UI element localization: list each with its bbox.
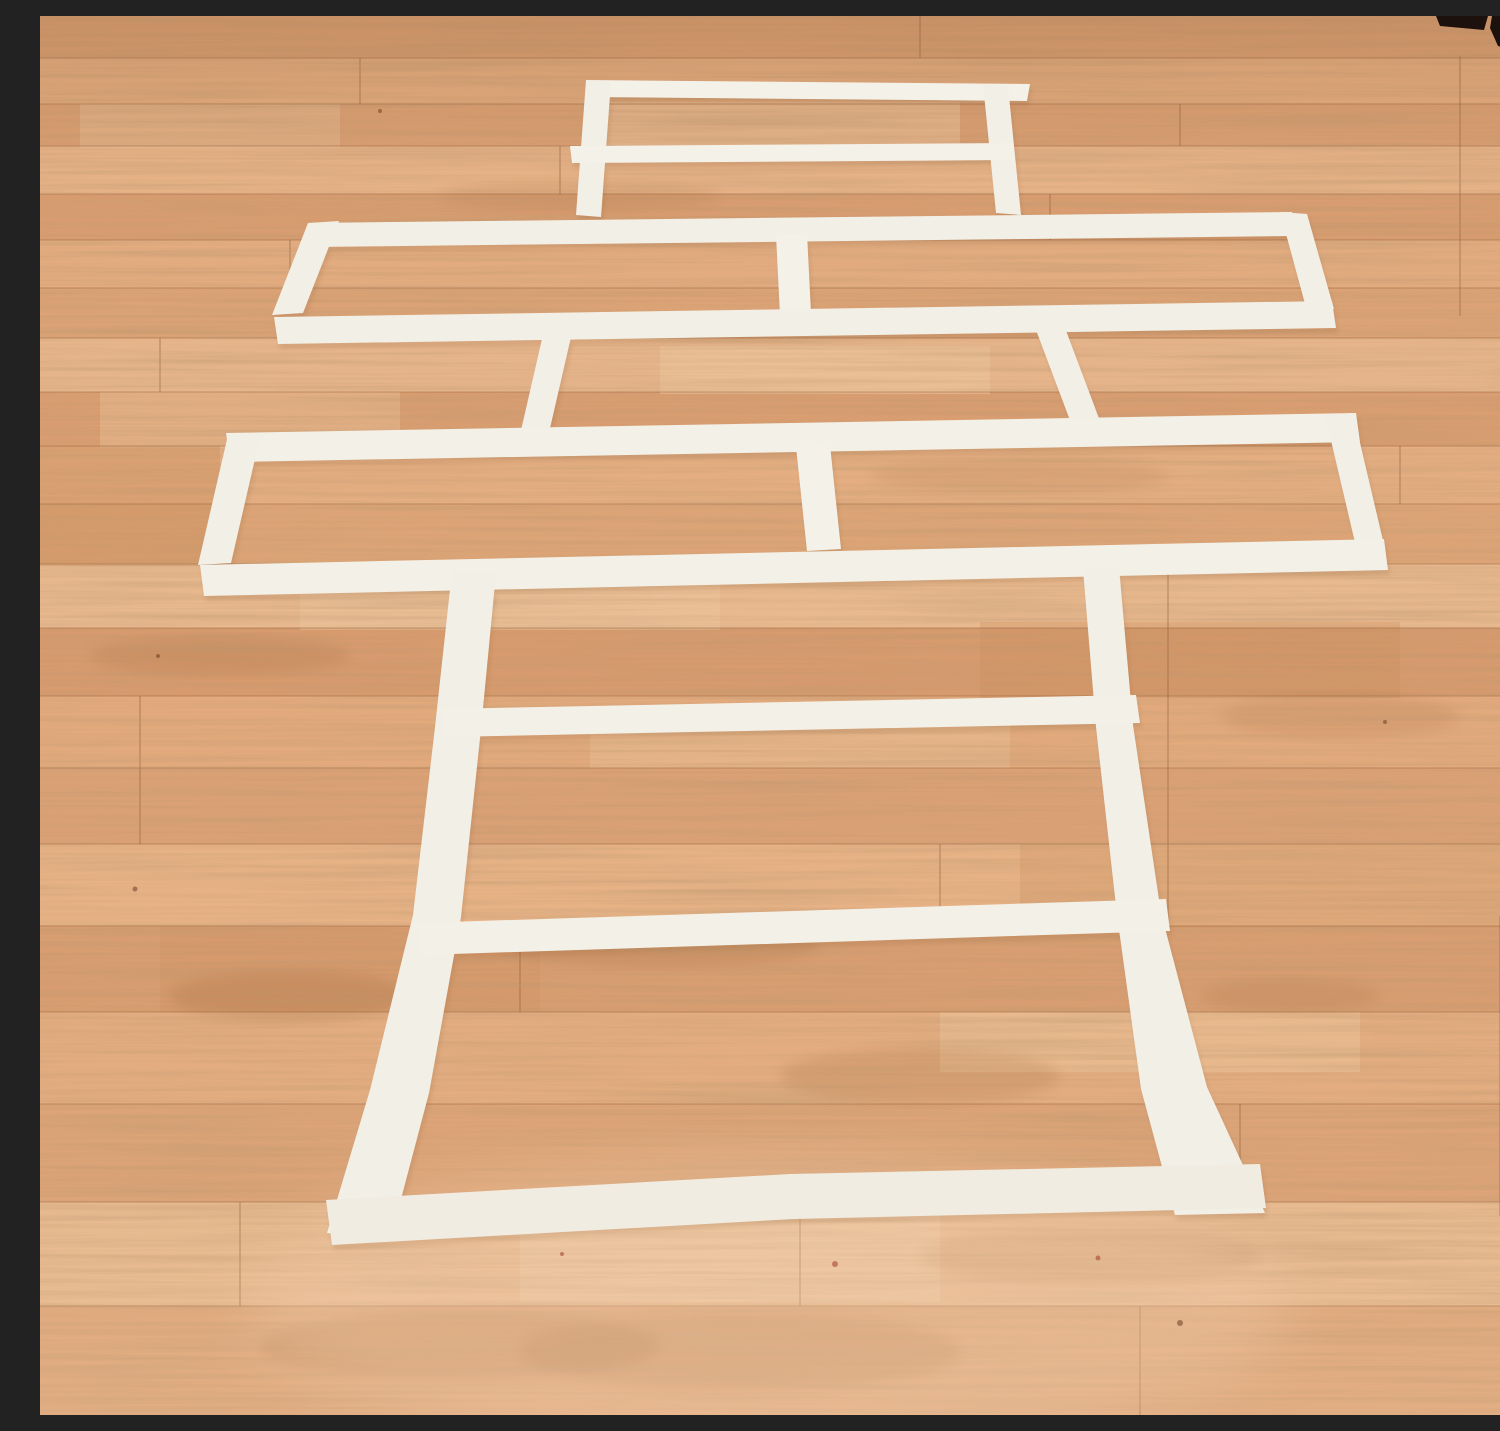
floor-speck — [1177, 1320, 1183, 1326]
floor-speck — [378, 109, 382, 113]
floor-speck — [1383, 720, 1387, 724]
floor-speck — [133, 887, 138, 892]
floor-speck — [560, 1252, 564, 1256]
floor-speck — [832, 1261, 838, 1267]
hopscotch-photo-canvas — [40, 16, 1500, 1415]
photo-hopscotch-floor — [40, 16, 1500, 1415]
floor-speck — [1096, 1256, 1101, 1261]
floor-speck — [156, 654, 160, 658]
tape-top-box-mid — [570, 143, 1015, 163]
tape-row1-mid — [776, 233, 811, 315]
